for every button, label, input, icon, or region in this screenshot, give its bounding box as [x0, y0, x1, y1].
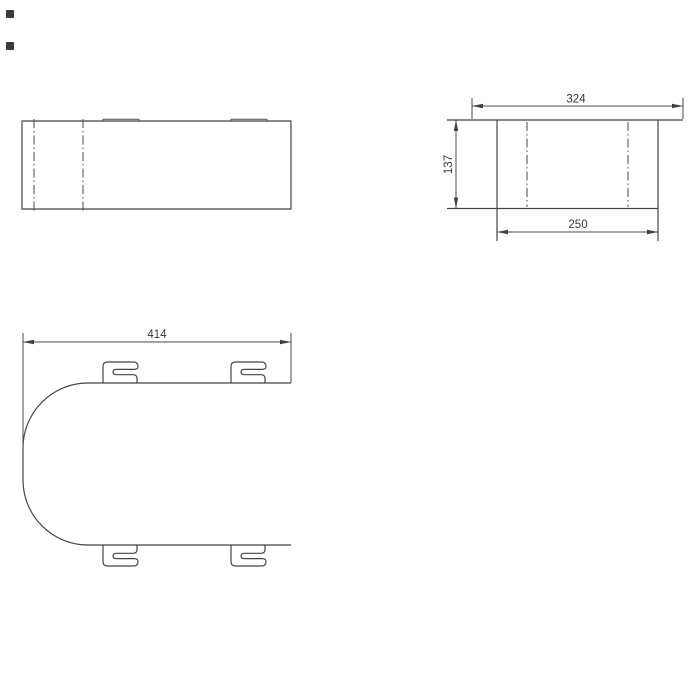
front-view [22, 119, 291, 211]
dimension-plan-length: 414 [23, 329, 291, 450]
dimension-side-height: 137 [443, 120, 458, 209]
mounting-clip-top-left [103, 362, 138, 383]
dimension-text-137: 137 [443, 155, 455, 174]
arrowhead-left [472, 104, 483, 108]
arrowhead-right [280, 340, 291, 344]
side-view: 324 137 250 [443, 94, 683, 242]
arrowhead-top [454, 120, 458, 131]
arrowhead-bottom [454, 198, 458, 209]
mounting-clip-bottom-right [231, 545, 266, 566]
front-view-outline [22, 121, 291, 209]
dimension-text-324: 324 [566, 94, 586, 106]
plan-view: 414 [23, 329, 291, 566]
corner-mark-bottom [6, 42, 14, 50]
arrowhead-right [672, 104, 683, 108]
plan-outline [23, 383, 291, 545]
arrowhead-left [497, 230, 508, 234]
dimension-text-250: 250 [568, 219, 587, 231]
dimension-side-overall-width: 324 [472, 94, 683, 120]
arrowhead-right [647, 230, 658, 234]
dimension-side-body-width: 250 [497, 219, 658, 234]
technical-drawing-canvas: 324 137 250 414 [0, 0, 700, 700]
arrowhead-left [23, 340, 34, 344]
corner-mark-top [6, 10, 14, 18]
mounting-clip-bottom-left [103, 545, 138, 566]
dimension-text-414: 414 [147, 329, 167, 341]
mounting-clip-top-right [231, 362, 266, 383]
